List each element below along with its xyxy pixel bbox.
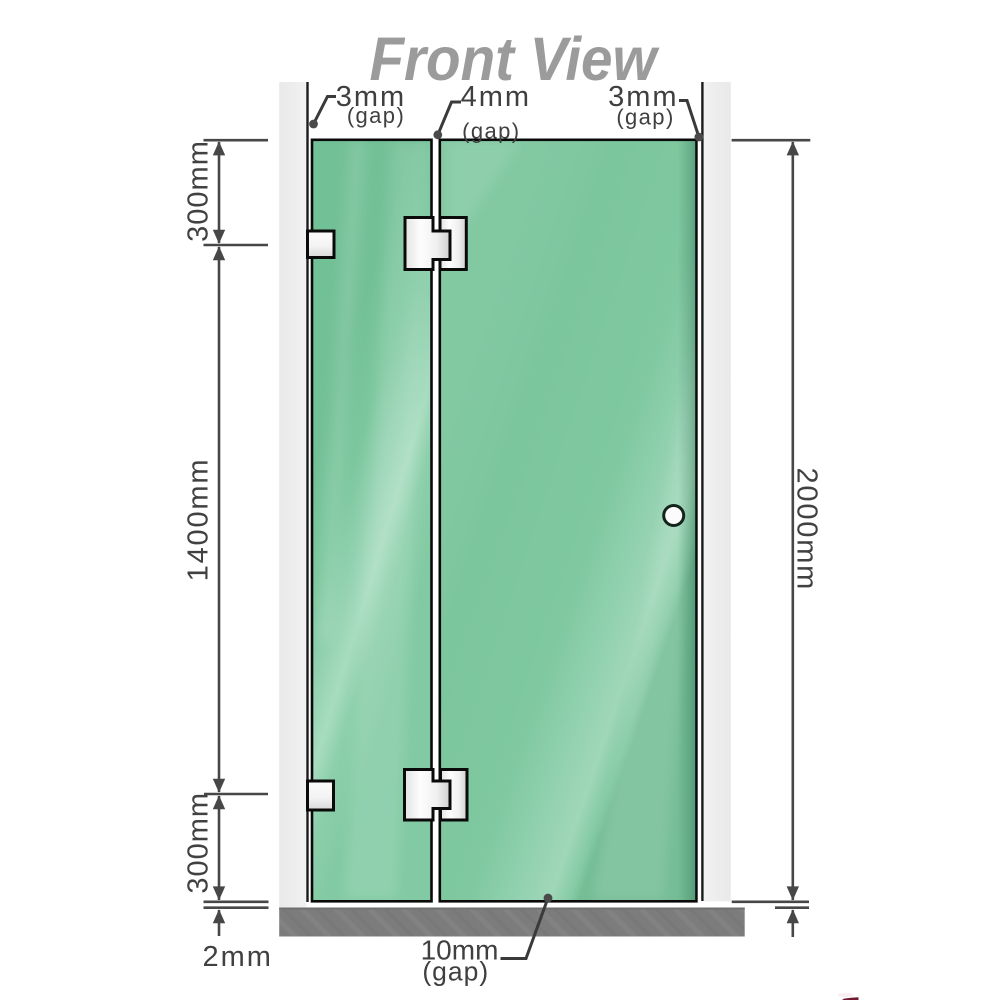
svg-text:300mm: 300mm xyxy=(183,792,215,894)
svg-text:4mm: 4mm xyxy=(461,81,531,113)
svg-text:1400mm: 1400mm xyxy=(183,458,215,582)
svg-text:(gap): (gap) xyxy=(462,119,520,144)
svg-text:2mm: 2mm xyxy=(202,941,272,973)
svg-text:(gap): (gap) xyxy=(422,957,489,987)
svg-text:(gap): (gap) xyxy=(347,103,405,128)
svg-text:300mm: 300mm xyxy=(183,140,215,242)
svg-text:(gap): (gap) xyxy=(616,105,674,130)
svg-text:2000mm: 2000mm xyxy=(791,467,823,591)
